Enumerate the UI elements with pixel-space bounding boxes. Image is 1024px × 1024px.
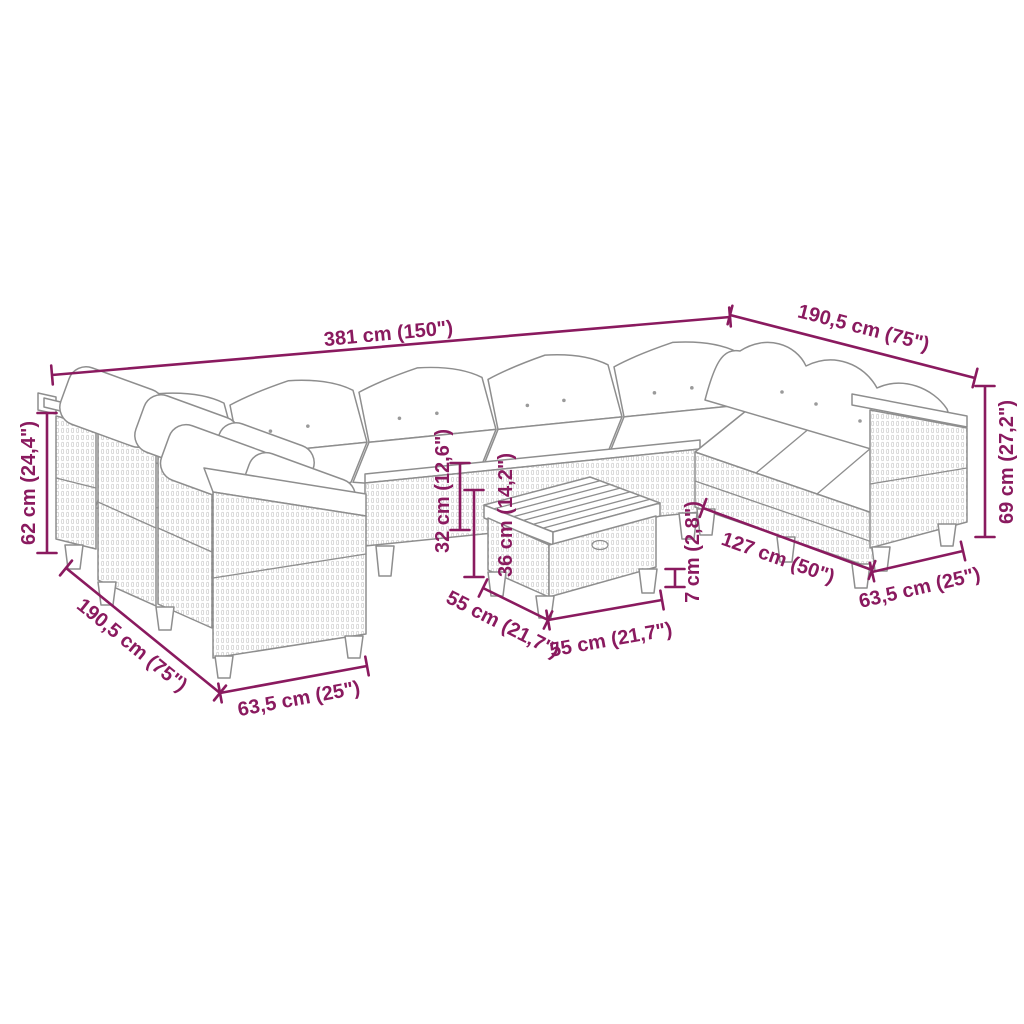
furniture-leg [639, 569, 657, 593]
dimension-label-right-height: 69 cm (27,2") [996, 400, 1018, 524]
dimension-label-table-width: 55 cm (21,7") [548, 618, 674, 661]
cushion-button [653, 391, 657, 395]
dimension-left-height: 62 cm (24,4") [18, 413, 57, 553]
dimension-table-width: 55 cm (21,7") [546, 591, 674, 662]
dimension-left-module-width: 63,5 cm (25") [218, 657, 368, 721]
cushion-button [690, 386, 694, 390]
furniture-leg [156, 607, 174, 630]
garden-sofa-set-diagram: 381 cm (150")190,5 cm (75")69 cm (27,2")… [0, 0, 1024, 1024]
furniture-leg [215, 656, 233, 678]
dimension-line-right-height [976, 386, 995, 537]
furniture-leg [938, 524, 956, 546]
dimension-diagram-canvas: 381 cm (150")190,5 cm (75")69 cm (27,2")… [0, 0, 1024, 1024]
dimension-right-height: 69 cm (27,2") [976, 386, 1019, 537]
cushion-button [780, 390, 784, 394]
dimension-label-right-depth: 190,5 cm (75") [795, 301, 931, 356]
dimension-label-left-height: 62 cm (24,4") [18, 421, 40, 545]
furniture-leg [376, 546, 394, 576]
dimension-label-table-leg-height: 7 cm (2,8") [682, 501, 704, 603]
cushion-button [562, 399, 566, 403]
cushion-button [858, 419, 862, 423]
cushion-button [269, 429, 273, 433]
furniture-leg [345, 636, 363, 658]
dimension-table-leg-height: 7 cm (2,8") [666, 501, 705, 603]
cushion-button [306, 424, 310, 428]
dimension-label-seat-height: 32 cm (12,6") [432, 429, 454, 553]
cushion-button [398, 416, 402, 420]
dimension-label-left-module-width: 63,5 cm (25") [236, 677, 362, 721]
cushion-button [814, 402, 818, 406]
cushion-button [526, 404, 530, 408]
cushion-button [435, 411, 439, 415]
dimension-line-left-height [38, 413, 57, 553]
dimension-label-table-height: 36 cm (14,2") [495, 453, 517, 577]
